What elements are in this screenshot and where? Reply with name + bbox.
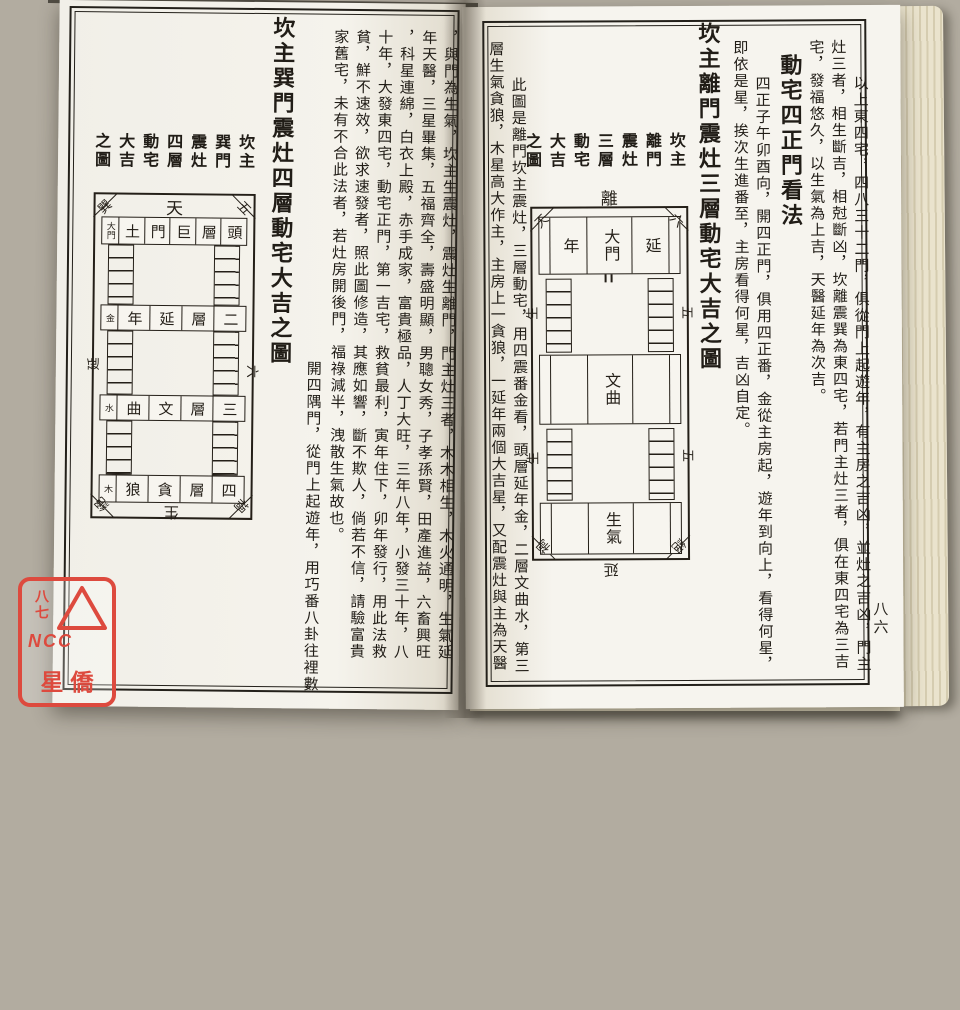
room-cell: [632, 355, 669, 423]
note-column: 層生氣貪狼，木星高大作主，主房上一貪狼，一延年兩個大吉星，又配震灶與主為天醫: [484, 41, 508, 689]
brand-text: 星僑: [22, 663, 112, 697]
diagram-title: 坎主巽門震灶四層動宅大吉之圖: [264, 16, 298, 366]
room-cell: 年: [549, 218, 586, 274]
room-cell: 門: [144, 218, 170, 244]
ncc-triangle-icon: [56, 585, 108, 636]
text-column: 四正子午卯酉向，開四正門，俱用四正番，金從主房起，遊年到向上，看得何星，: [750, 40, 775, 724]
room-cell: 層: [195, 218, 221, 244]
stamp-page-number: 八七: [30, 589, 50, 621]
wing-rooms: [546, 279, 572, 353]
room-cell: 金: [101, 305, 117, 329]
room-cell: [669, 355, 680, 423]
diagram-label: 震灶: [615, 132, 639, 169]
room-cell: 貪: [147, 476, 179, 502]
note-column: 此圖是離門坎主震灶，三層動宅，用四震番金看，頭層延年金，二層文曲水，第三: [506, 41, 531, 725]
diagram-label: 巽門: [208, 133, 232, 170]
wing-rooms: [546, 429, 572, 501]
wing-rooms: [648, 278, 674, 352]
diagram-label: 大吉: [543, 133, 567, 170]
room-cell: [540, 356, 550, 424]
room-cell: 延: [149, 306, 181, 330]
room-cell: 文曲: [587, 355, 632, 423]
room-cell: [633, 503, 670, 553]
diagram-label: 三層: [591, 132, 615, 169]
room-cell: 二: [213, 307, 245, 331]
page-number: 八六: [869, 601, 890, 637]
diagram-label: 大吉: [112, 132, 136, 169]
room-cell: 巨: [169, 218, 195, 244]
wing-rooms: [212, 422, 239, 476]
four-layer-house-diagram: 天 巽 五 絕 禍 延 六 生 大門土門巨層頭 金年延層二 水曲文層三 木狼貪層…: [90, 192, 255, 520]
room-cell: 頭: [221, 219, 247, 245]
layer-row-3: 水曲文層三: [99, 394, 245, 422]
room-cell: 曲: [116, 396, 148, 420]
diagram-label: 坎主: [232, 134, 256, 171]
layer-row-2: 文曲: [539, 354, 681, 425]
direction-label-bottom: 生: [92, 501, 250, 524]
text-column: 即依是星，挨次生進番至，主房看得何星，吉凶自定。: [728, 40, 752, 688]
diagram-label: 動宅: [136, 133, 160, 170]
room-cell: 文: [148, 396, 180, 420]
section-heading: 動宅四正門看法: [774, 53, 805, 228]
diagram-label-row: 坎主巽門震灶四層動宅大吉之圖: [104, 132, 256, 171]
diagram-label: 四層: [160, 133, 184, 170]
room-cell: [551, 504, 588, 554]
text-column: 灶三者，相生斷吉，相尅斷凶，坎離震巽為東四宅，若門主灶三者，俱在東四宅為三吉: [826, 39, 850, 687]
diagram-label: 震灶: [184, 133, 208, 170]
side-label: 五: [679, 306, 698, 319]
room-cell: 年: [117, 306, 149, 330]
diagram-label: 離門: [639, 132, 663, 169]
side-label: 生: [522, 307, 541, 320]
wing-rooms: [108, 244, 135, 304]
layer-row-1: 年 大門 延: [538, 216, 680, 275]
room-cell: 狼: [115, 476, 147, 502]
diagram-label: 坎主: [663, 132, 687, 169]
side-label: 延: [83, 357, 102, 370]
room-cell: 大門: [102, 217, 118, 243]
wing-rooms: [107, 330, 134, 394]
room-cell: 層: [180, 396, 212, 420]
wing-rooms: [214, 246, 241, 306]
diagram-label-row: 坎主離門震灶三層動宅大吉之圖: [537, 132, 687, 170]
main-room: 生氣: [588, 503, 633, 553]
layer-row-4: 木狼貪層四: [98, 474, 244, 504]
room-cell: [550, 356, 587, 424]
right-page: 以上東四宅，四八三十二門，俱從門上起遊年，有主房之吉凶，並灶之吉凶，門主 灶三者…: [462, 5, 904, 709]
three-layer-house-diagram: 離 天 六 禍 絕 生 生 五 五 延 年 大門 延 文曲: [530, 206, 690, 561]
main-gate-room: 大門: [586, 217, 631, 273]
wing-rooms: [106, 420, 133, 474]
book-photo: { "left_page": { "text_columns": [ "，與門為…: [0, 0, 960, 720]
room-cell: 延: [631, 217, 668, 273]
ncc-stamp: 八七 NCC 星僑: [18, 577, 116, 707]
diagram-label: 動宅: [567, 132, 591, 169]
layer-row-1: 大門土門巨層頭: [101, 216, 247, 246]
side-label: 六: [244, 365, 263, 378]
layer-row-3: 生氣: [540, 502, 682, 555]
room-cell: 土: [118, 218, 144, 244]
side-label: 生: [523, 452, 542, 465]
direction-label-bottom: 延: [534, 559, 688, 581]
direction-label-top: 天: [95, 193, 253, 215]
text-column: 宅，發福悠久，以生氣為上吉，天醫延年為次吉。: [804, 39, 828, 687]
room-cell: 層: [179, 476, 211, 502]
wing-rooms: [648, 428, 674, 500]
layer-row-2: 金年延層二: [100, 304, 246, 332]
room-cell: 層: [181, 306, 213, 330]
room-cell: 三: [212, 397, 244, 421]
wing-rooms: [213, 332, 240, 396]
side-label: 五: [679, 449, 698, 462]
diagram-title: 坎主離門震灶三層動宅大吉之圖: [692, 22, 724, 372]
ncc-text: NCC: [28, 631, 73, 652]
room-cell: 水: [100, 395, 116, 419]
door-marks: [605, 274, 613, 282]
diagram-label: 之圖: [88, 132, 112, 169]
